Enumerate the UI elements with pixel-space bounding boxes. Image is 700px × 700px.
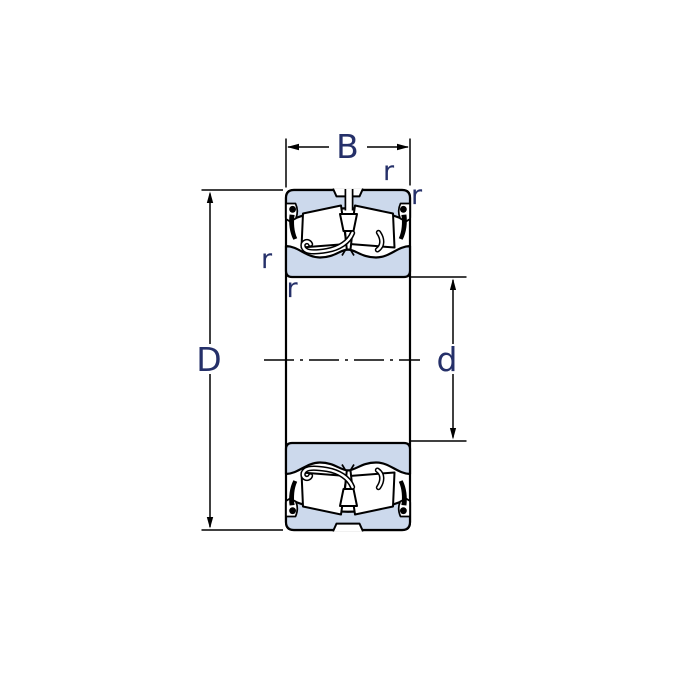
label-fillet-bottom-left: r xyxy=(287,273,299,304)
label-fillet-top-corner: r xyxy=(411,180,423,211)
label-fillet-left: r xyxy=(261,244,273,275)
label-fillet-top: r xyxy=(383,156,395,187)
label-width-B: B xyxy=(336,127,359,166)
cage-guide-ring xyxy=(340,214,357,231)
roller-right xyxy=(350,206,395,248)
lubrication-hole xyxy=(345,189,352,211)
label-outer-diameter-D: D xyxy=(196,340,221,379)
label-bore-d: d xyxy=(437,340,458,379)
bearing-lower-half xyxy=(286,443,410,531)
background xyxy=(0,0,700,700)
bearing-dimension-drawing: B D d r r r r xyxy=(0,0,700,700)
drawing-canvas: B D d r r r r xyxy=(0,0,700,700)
